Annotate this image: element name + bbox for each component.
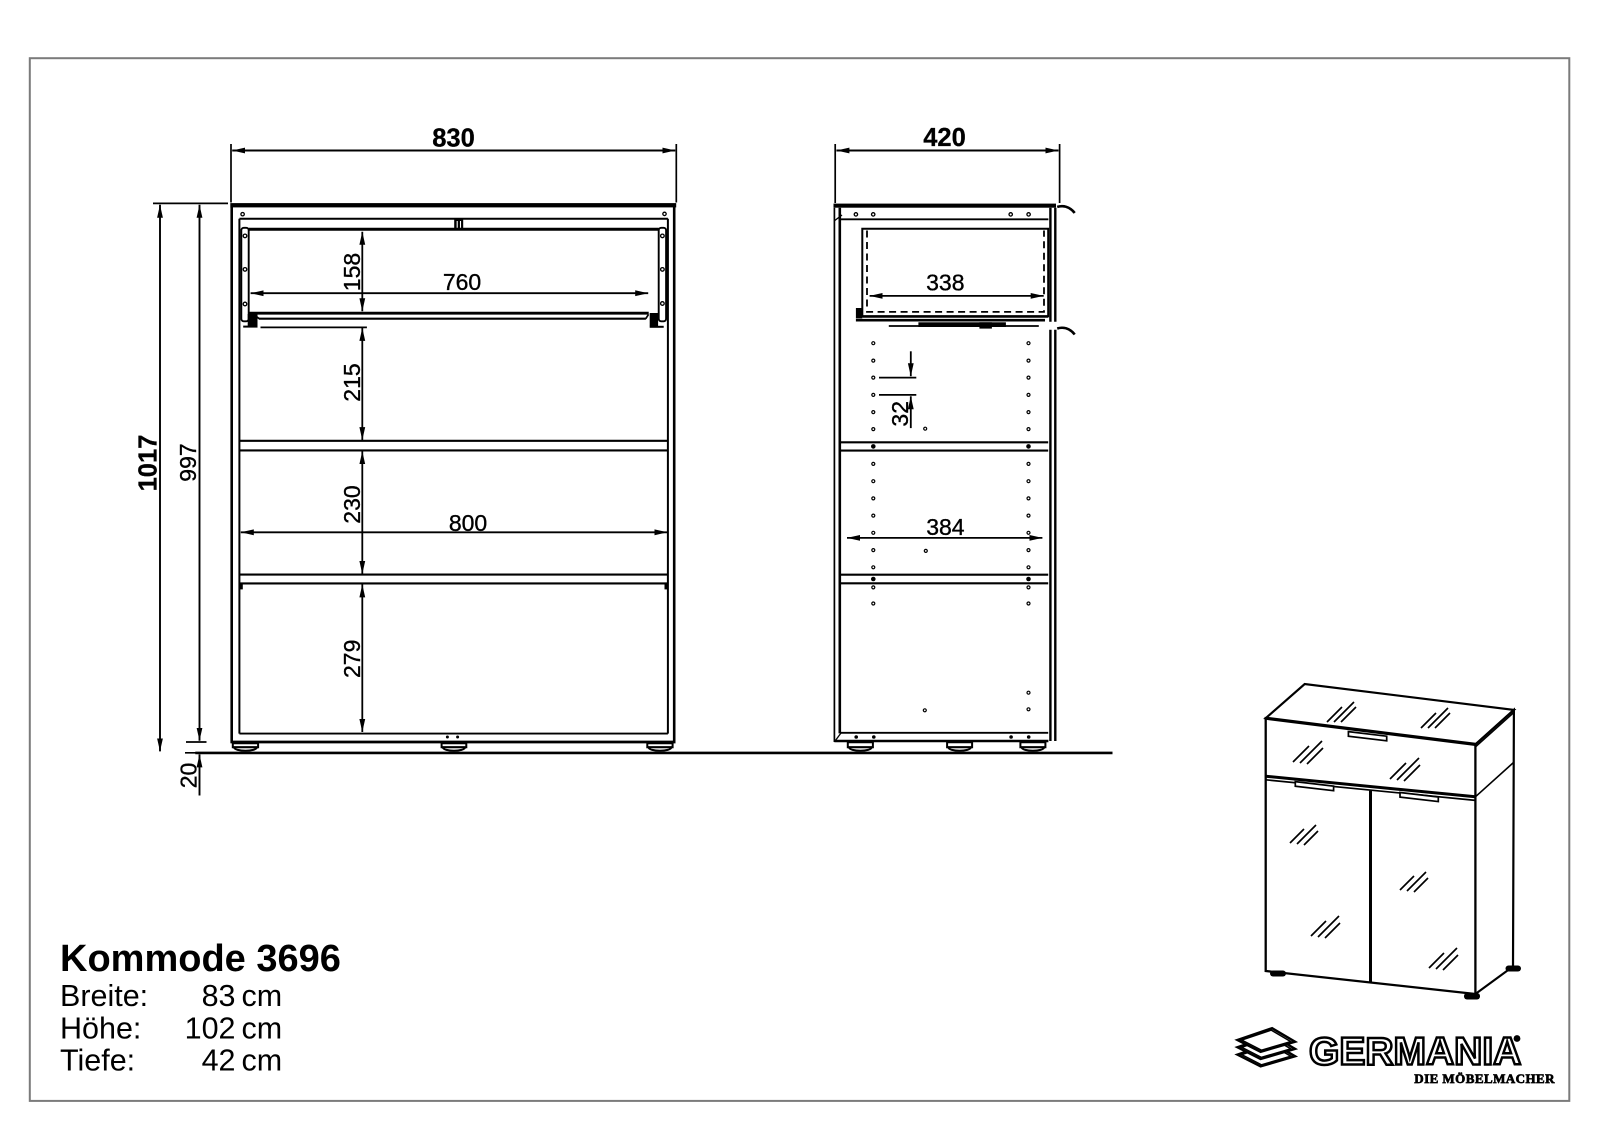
svg-text:279: 279 bbox=[339, 640, 365, 678]
svg-text:384: 384 bbox=[926, 514, 965, 540]
svg-text:800: 800 bbox=[449, 510, 487, 536]
svg-text:Breite:: Breite: bbox=[60, 979, 148, 1013]
svg-text:42: 42 bbox=[202, 1044, 236, 1078]
svg-text:830: 830 bbox=[432, 124, 475, 152]
svg-text:Kommode 3696: Kommode 3696 bbox=[60, 938, 341, 980]
svg-text:158: 158 bbox=[339, 253, 365, 291]
svg-text:Höhe:: Höhe: bbox=[60, 1012, 141, 1046]
svg-text:102: 102 bbox=[185, 1012, 236, 1046]
svg-text:cm: cm bbox=[242, 1012, 283, 1046]
svg-text:215: 215 bbox=[339, 363, 365, 401]
svg-text:338: 338 bbox=[926, 270, 964, 296]
svg-text:1017: 1017 bbox=[134, 435, 162, 492]
svg-text:20: 20 bbox=[176, 763, 202, 789]
svg-text:cm: cm bbox=[242, 979, 283, 1013]
svg-text:420: 420 bbox=[923, 124, 966, 152]
svg-text:cm: cm bbox=[242, 1044, 283, 1078]
svg-text:GERMANIA: GERMANIA bbox=[1309, 1031, 1521, 1074]
svg-text:997: 997 bbox=[175, 443, 201, 481]
svg-text:DIE MÖBELMACHER: DIE MÖBELMACHER bbox=[1414, 1071, 1555, 1086]
svg-text:32: 32 bbox=[887, 401, 913, 427]
svg-text:230: 230 bbox=[339, 485, 365, 523]
svg-text:Tiefe:: Tiefe: bbox=[60, 1044, 135, 1078]
svg-text:760: 760 bbox=[443, 269, 481, 295]
svg-text:83: 83 bbox=[202, 979, 236, 1013]
